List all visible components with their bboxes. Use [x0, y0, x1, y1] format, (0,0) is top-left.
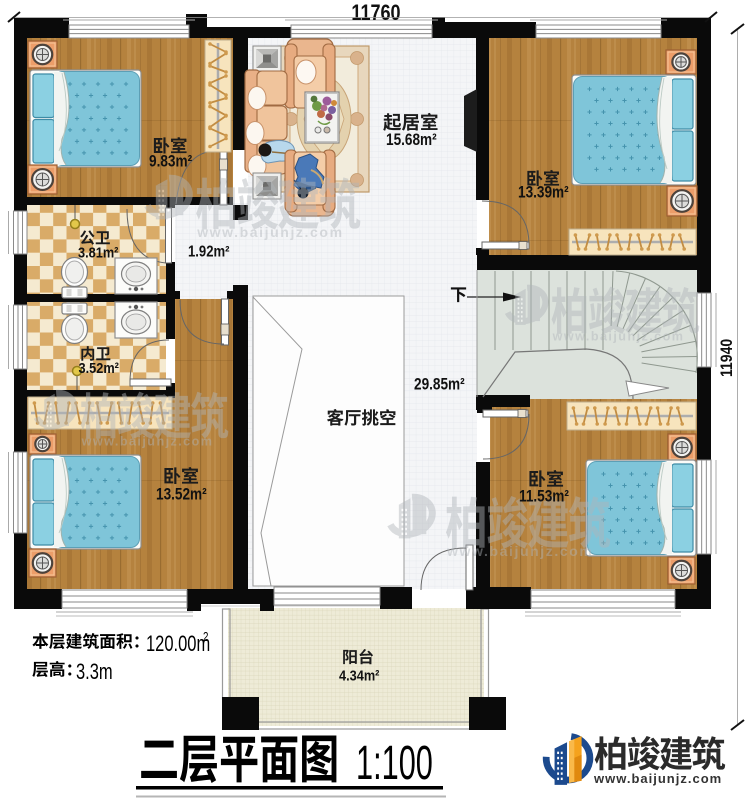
svg-text:11760: 11760 — [351, 1, 400, 25]
svg-text:11.53m²: 11.53m² — [519, 487, 569, 505]
svg-text:13.39m²: 13.39m² — [518, 183, 569, 201]
svg-text:www.baijunjz.com: www.baijunjz.com — [593, 771, 722, 786]
svg-text:www.baijunjz.com: www.baijunjz.com — [446, 543, 593, 559]
svg-text:3.3m: 3.3m — [76, 660, 113, 685]
svg-text:3.52m²: 3.52m² — [79, 359, 120, 376]
svg-text:www.baijunjz.com: www.baijunjz.com — [552, 330, 685, 344]
svg-text:3.81m²: 3.81m² — [78, 243, 119, 260]
svg-text:1:100: 1:100 — [356, 736, 433, 790]
svg-text:www.baijunjz.com: www.baijunjz.com — [81, 435, 214, 449]
svg-text:9.83m²: 9.83m² — [149, 152, 192, 170]
svg-text:29.85m²: 29.85m² — [414, 375, 465, 393]
svg-text:13.52m²: 13.52m² — [156, 485, 207, 503]
svg-text:www.baijunjz.com: www.baijunjz.com — [196, 224, 343, 240]
svg-text:1.92m²: 1.92m² — [188, 244, 230, 261]
svg-text:120.00m: 120.00m — [146, 632, 210, 657]
svg-text:11940: 11940 — [718, 339, 736, 377]
svg-text:4.34m²: 4.34m² — [339, 666, 380, 683]
svg-text:15.68m²: 15.68m² — [386, 131, 437, 149]
svg-text:2: 2 — [203, 631, 208, 645]
